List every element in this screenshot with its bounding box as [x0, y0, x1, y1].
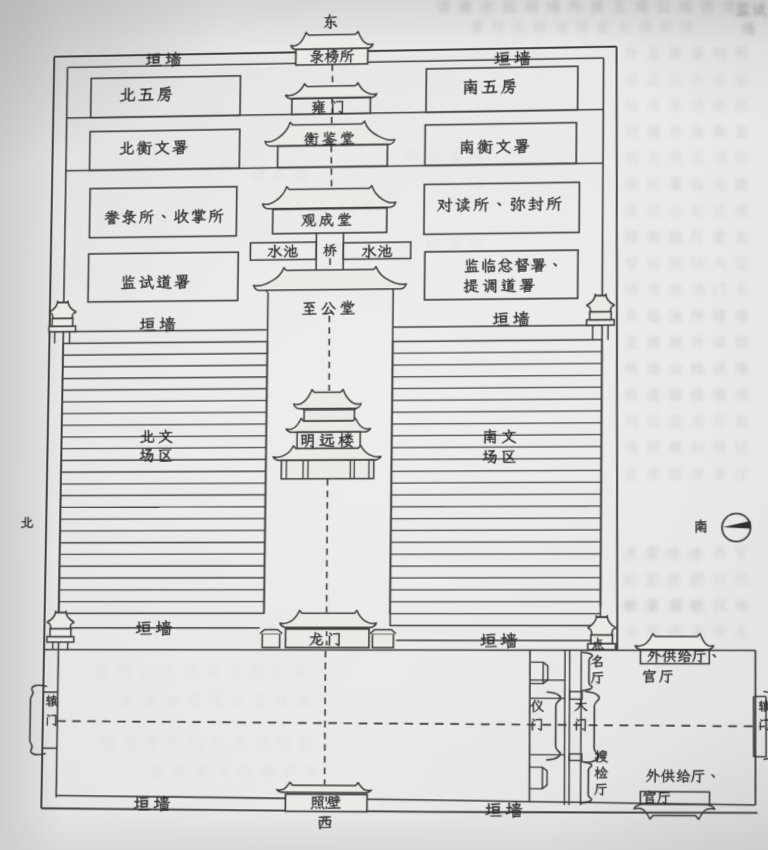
- svg-text:场区: 场区: [482, 446, 520, 467]
- svg-text:观成堂: 观成堂: [301, 211, 355, 231]
- svg-text:垣墙: 垣墙: [133, 792, 173, 815]
- svg-text:衡鉴堂: 衡鉴堂: [304, 129, 358, 149]
- svg-text:场区: 场区: [139, 445, 176, 466]
- svg-text:监试道署: 监试道署: [120, 272, 192, 293]
- svg-text:垣墙: 垣墙: [145, 48, 185, 71]
- svg-text:对读所、弥封所: 对读所、弥封所: [437, 194, 565, 216]
- svg-text:辕: 辕: [45, 692, 59, 710]
- svg-text:垣墙: 垣墙: [480, 629, 521, 652]
- svg-text:仪: 仪: [530, 696, 544, 715]
- svg-text:北文: 北文: [139, 426, 176, 447]
- svg-text:南文: 南文: [482, 427, 520, 448]
- svg-text:提调道署: 提调道署: [463, 275, 538, 296]
- svg-text:桥: 桥: [323, 241, 338, 260]
- svg-text:录榜所: 录榜所: [309, 47, 355, 67]
- svg-text:北: 北: [20, 513, 34, 531]
- svg-text:门: 门: [530, 714, 544, 733]
- svg-text:垣墙: 垣墙: [494, 47, 535, 70]
- svg-text:南五房: 南五房: [462, 75, 520, 98]
- svg-text:厅: 厅: [594, 779, 608, 798]
- svg-text:名: 名: [591, 651, 605, 670]
- svg-text:门: 门: [758, 717, 768, 734]
- svg-text:大: 大: [574, 696, 588, 715]
- svg-text:辕: 辕: [758, 698, 768, 715]
- svg-text:誊录所、收掌所: 誊录所、收掌所: [104, 206, 226, 228]
- svg-text:外供给厅、: 外供给厅、: [645, 767, 720, 787]
- svg-text:官厅: 官厅: [642, 667, 676, 687]
- svg-text:门: 门: [574, 715, 588, 734]
- svg-text:点: 点: [591, 634, 605, 653]
- svg-text:西: 西: [317, 812, 333, 833]
- svg-text:雍门: 雍门: [311, 97, 349, 117]
- svg-text:外供给厅、: 外供给厅、: [647, 647, 722, 667]
- svg-text:东: 东: [322, 12, 338, 33]
- svg-text:北衡文署: 北衡文署: [119, 138, 191, 159]
- svg-text:垣墙: 垣墙: [135, 617, 175, 640]
- svg-text:垣墙: 垣墙: [485, 798, 526, 821]
- svg-text:至公堂: 至公堂: [301, 298, 358, 319]
- svg-text:垣墙: 垣墙: [139, 312, 179, 335]
- svg-text:南: 南: [694, 516, 709, 535]
- svg-text:垣墙: 垣墙: [492, 308, 533, 331]
- svg-text:水池: 水池: [361, 242, 393, 262]
- svg-text:南衡文署: 南衡文署: [459, 136, 532, 158]
- svg-text:官厅: 官厅: [642, 788, 671, 807]
- svg-text:门: 门: [45, 711, 58, 729]
- svg-text:厅: 厅: [590, 668, 604, 687]
- svg-text:监临总督署、: 监临总督署、: [464, 255, 565, 277]
- svg-text:水池: 水池: [267, 242, 299, 262]
- svg-text:北五房: 北五房: [119, 83, 176, 106]
